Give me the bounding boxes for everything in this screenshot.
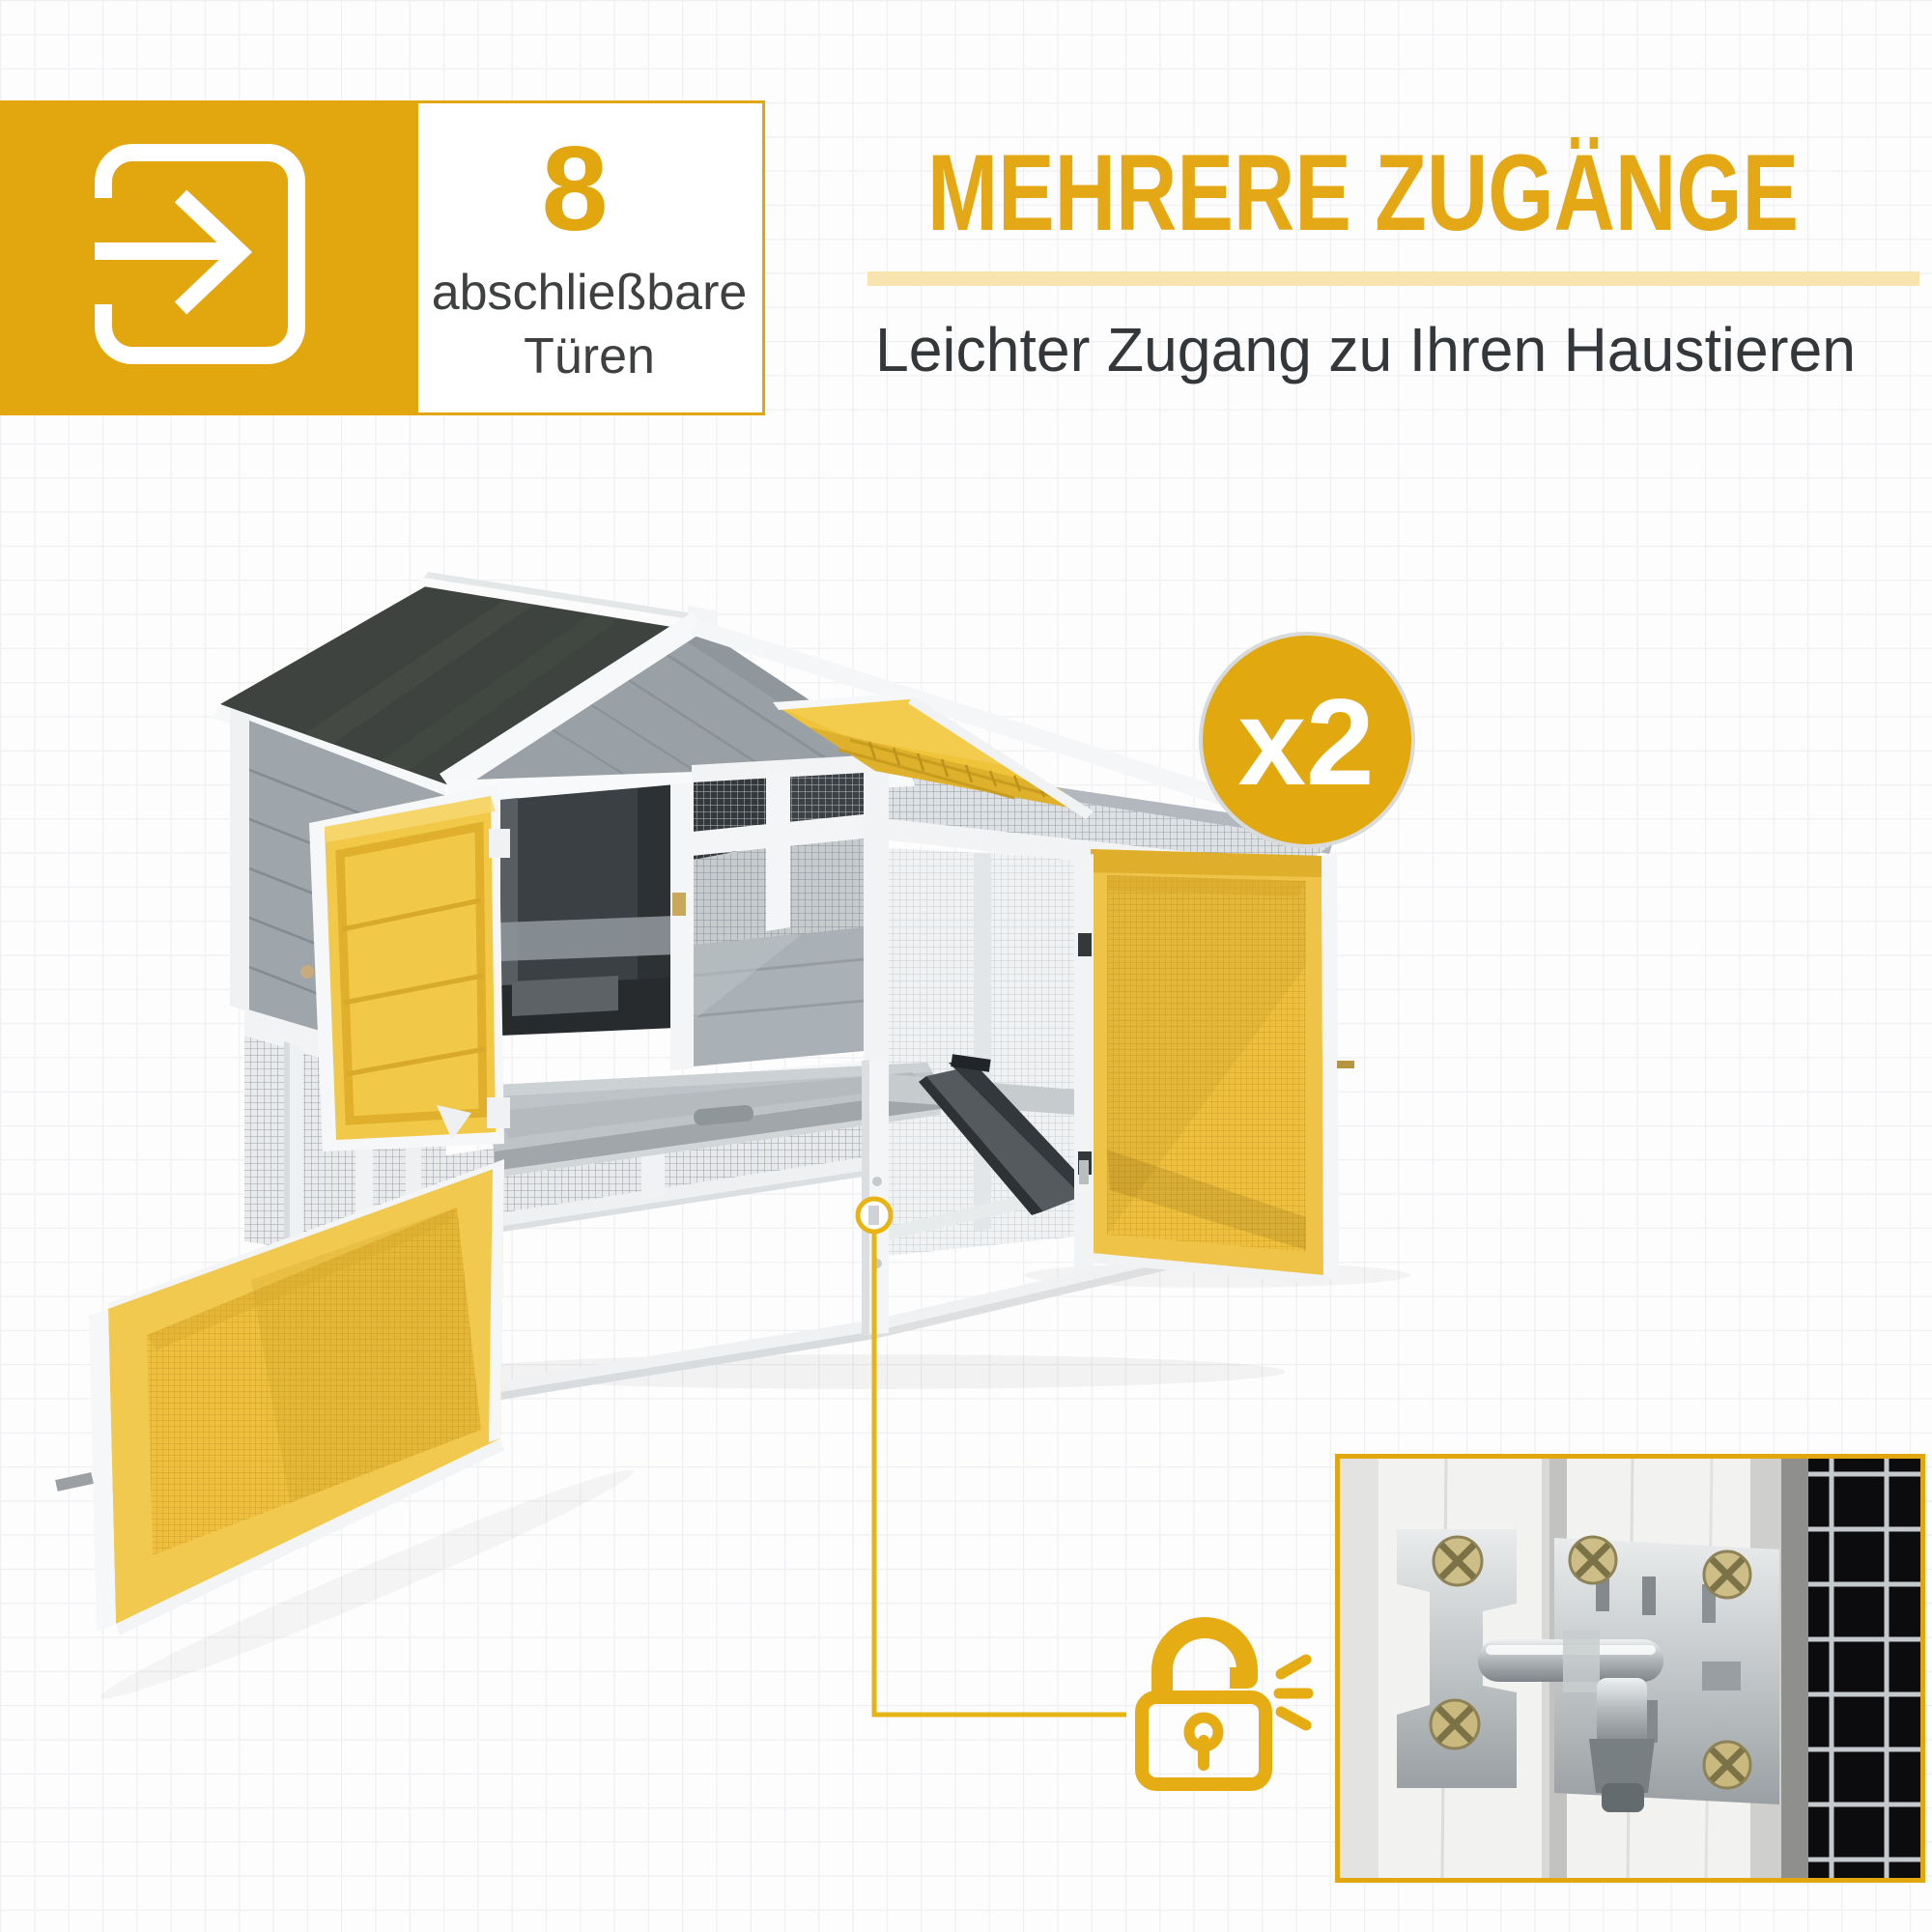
svg-text:Leichter Zugang zu Ihren Haust: Leichter Zugang zu Ihren Haustieren [875,315,1856,384]
svg-text:Türen: Türen [524,328,655,384]
svg-text:8: 8 [542,123,609,256]
svg-text:MEHRERE ZUGÄNGE: MEHRERE ZUGÄNGE [927,132,1799,253]
svg-text:abschließbare: abschließbare [432,265,748,321]
svg-text:x2: x2 [1237,673,1374,810]
